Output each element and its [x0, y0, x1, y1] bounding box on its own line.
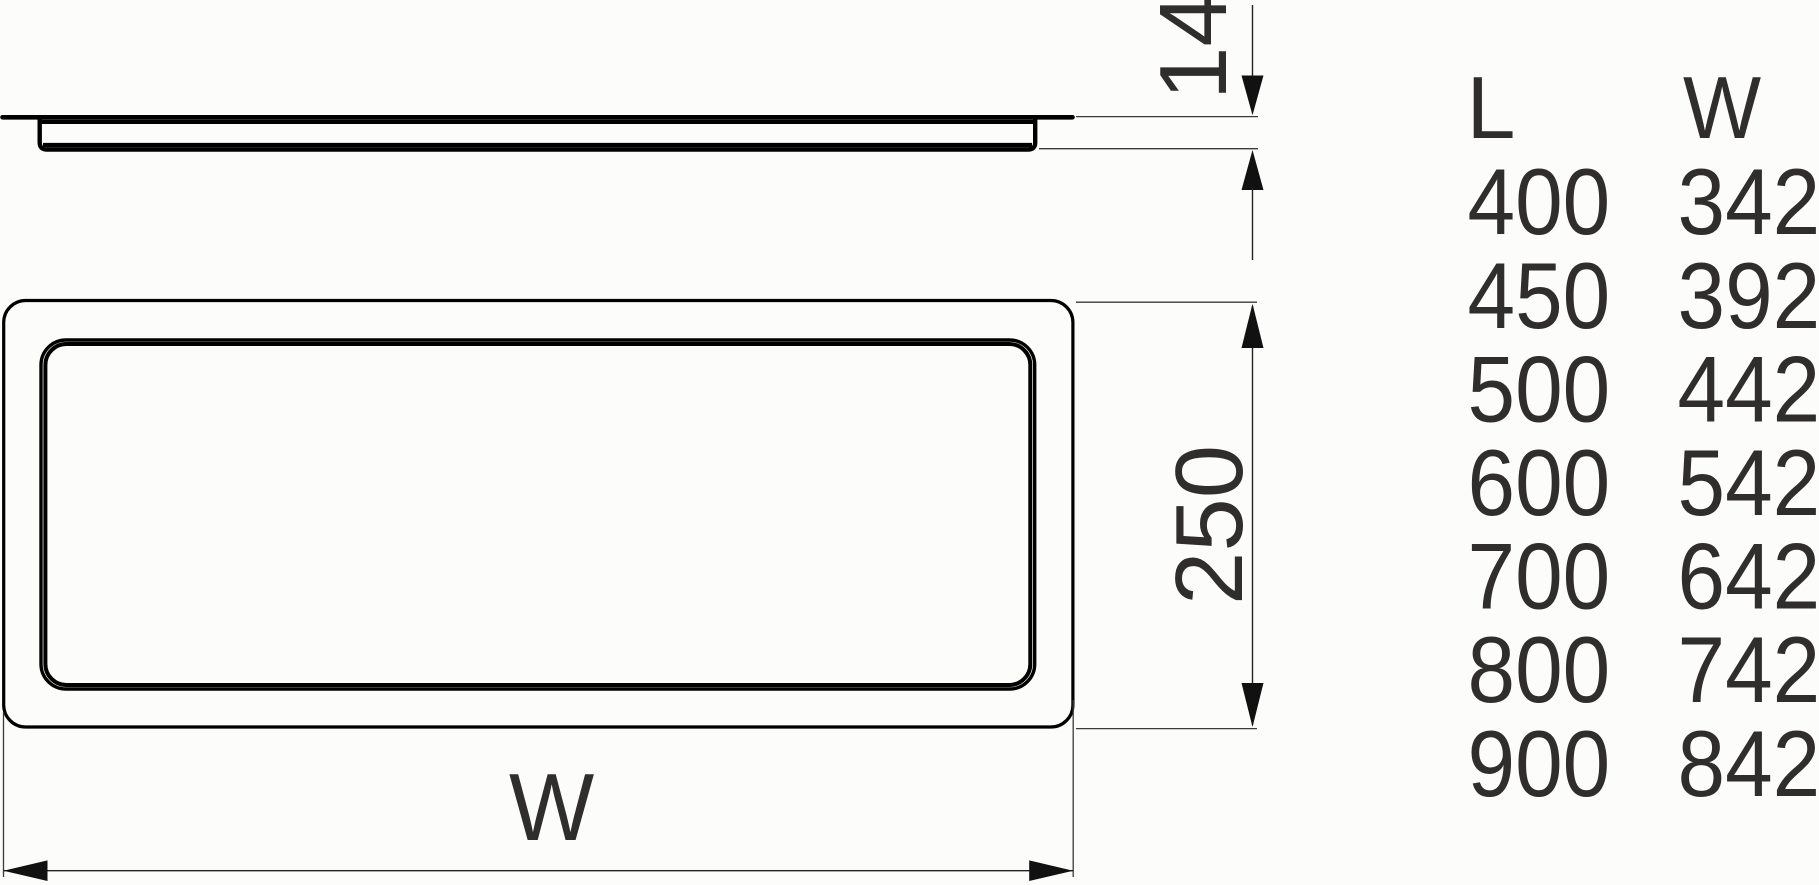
svg-text:L: L — [1467, 58, 1516, 157]
svg-text:542: 542 — [1678, 431, 1819, 536]
svg-text:742: 742 — [1678, 619, 1819, 724]
svg-text:600: 600 — [1468, 431, 1611, 536]
svg-text:800: 800 — [1468, 619, 1611, 724]
svg-text:14: 14 — [1140, 0, 1247, 100]
svg-text:842: 842 — [1678, 712, 1819, 817]
svg-text:W: W — [509, 754, 594, 861]
svg-text:342: 342 — [1678, 151, 1819, 256]
svg-text:450: 450 — [1468, 244, 1611, 349]
svg-text:250: 250 — [1156, 445, 1263, 605]
svg-text:642: 642 — [1678, 525, 1819, 630]
svg-text:500: 500 — [1468, 338, 1611, 443]
svg-text:400: 400 — [1468, 151, 1611, 256]
svg-text:W: W — [1683, 60, 1761, 158]
svg-text:442: 442 — [1678, 338, 1819, 443]
svg-text:392: 392 — [1678, 244, 1819, 349]
svg-text:900: 900 — [1468, 712, 1611, 817]
svg-text:700: 700 — [1468, 525, 1611, 630]
